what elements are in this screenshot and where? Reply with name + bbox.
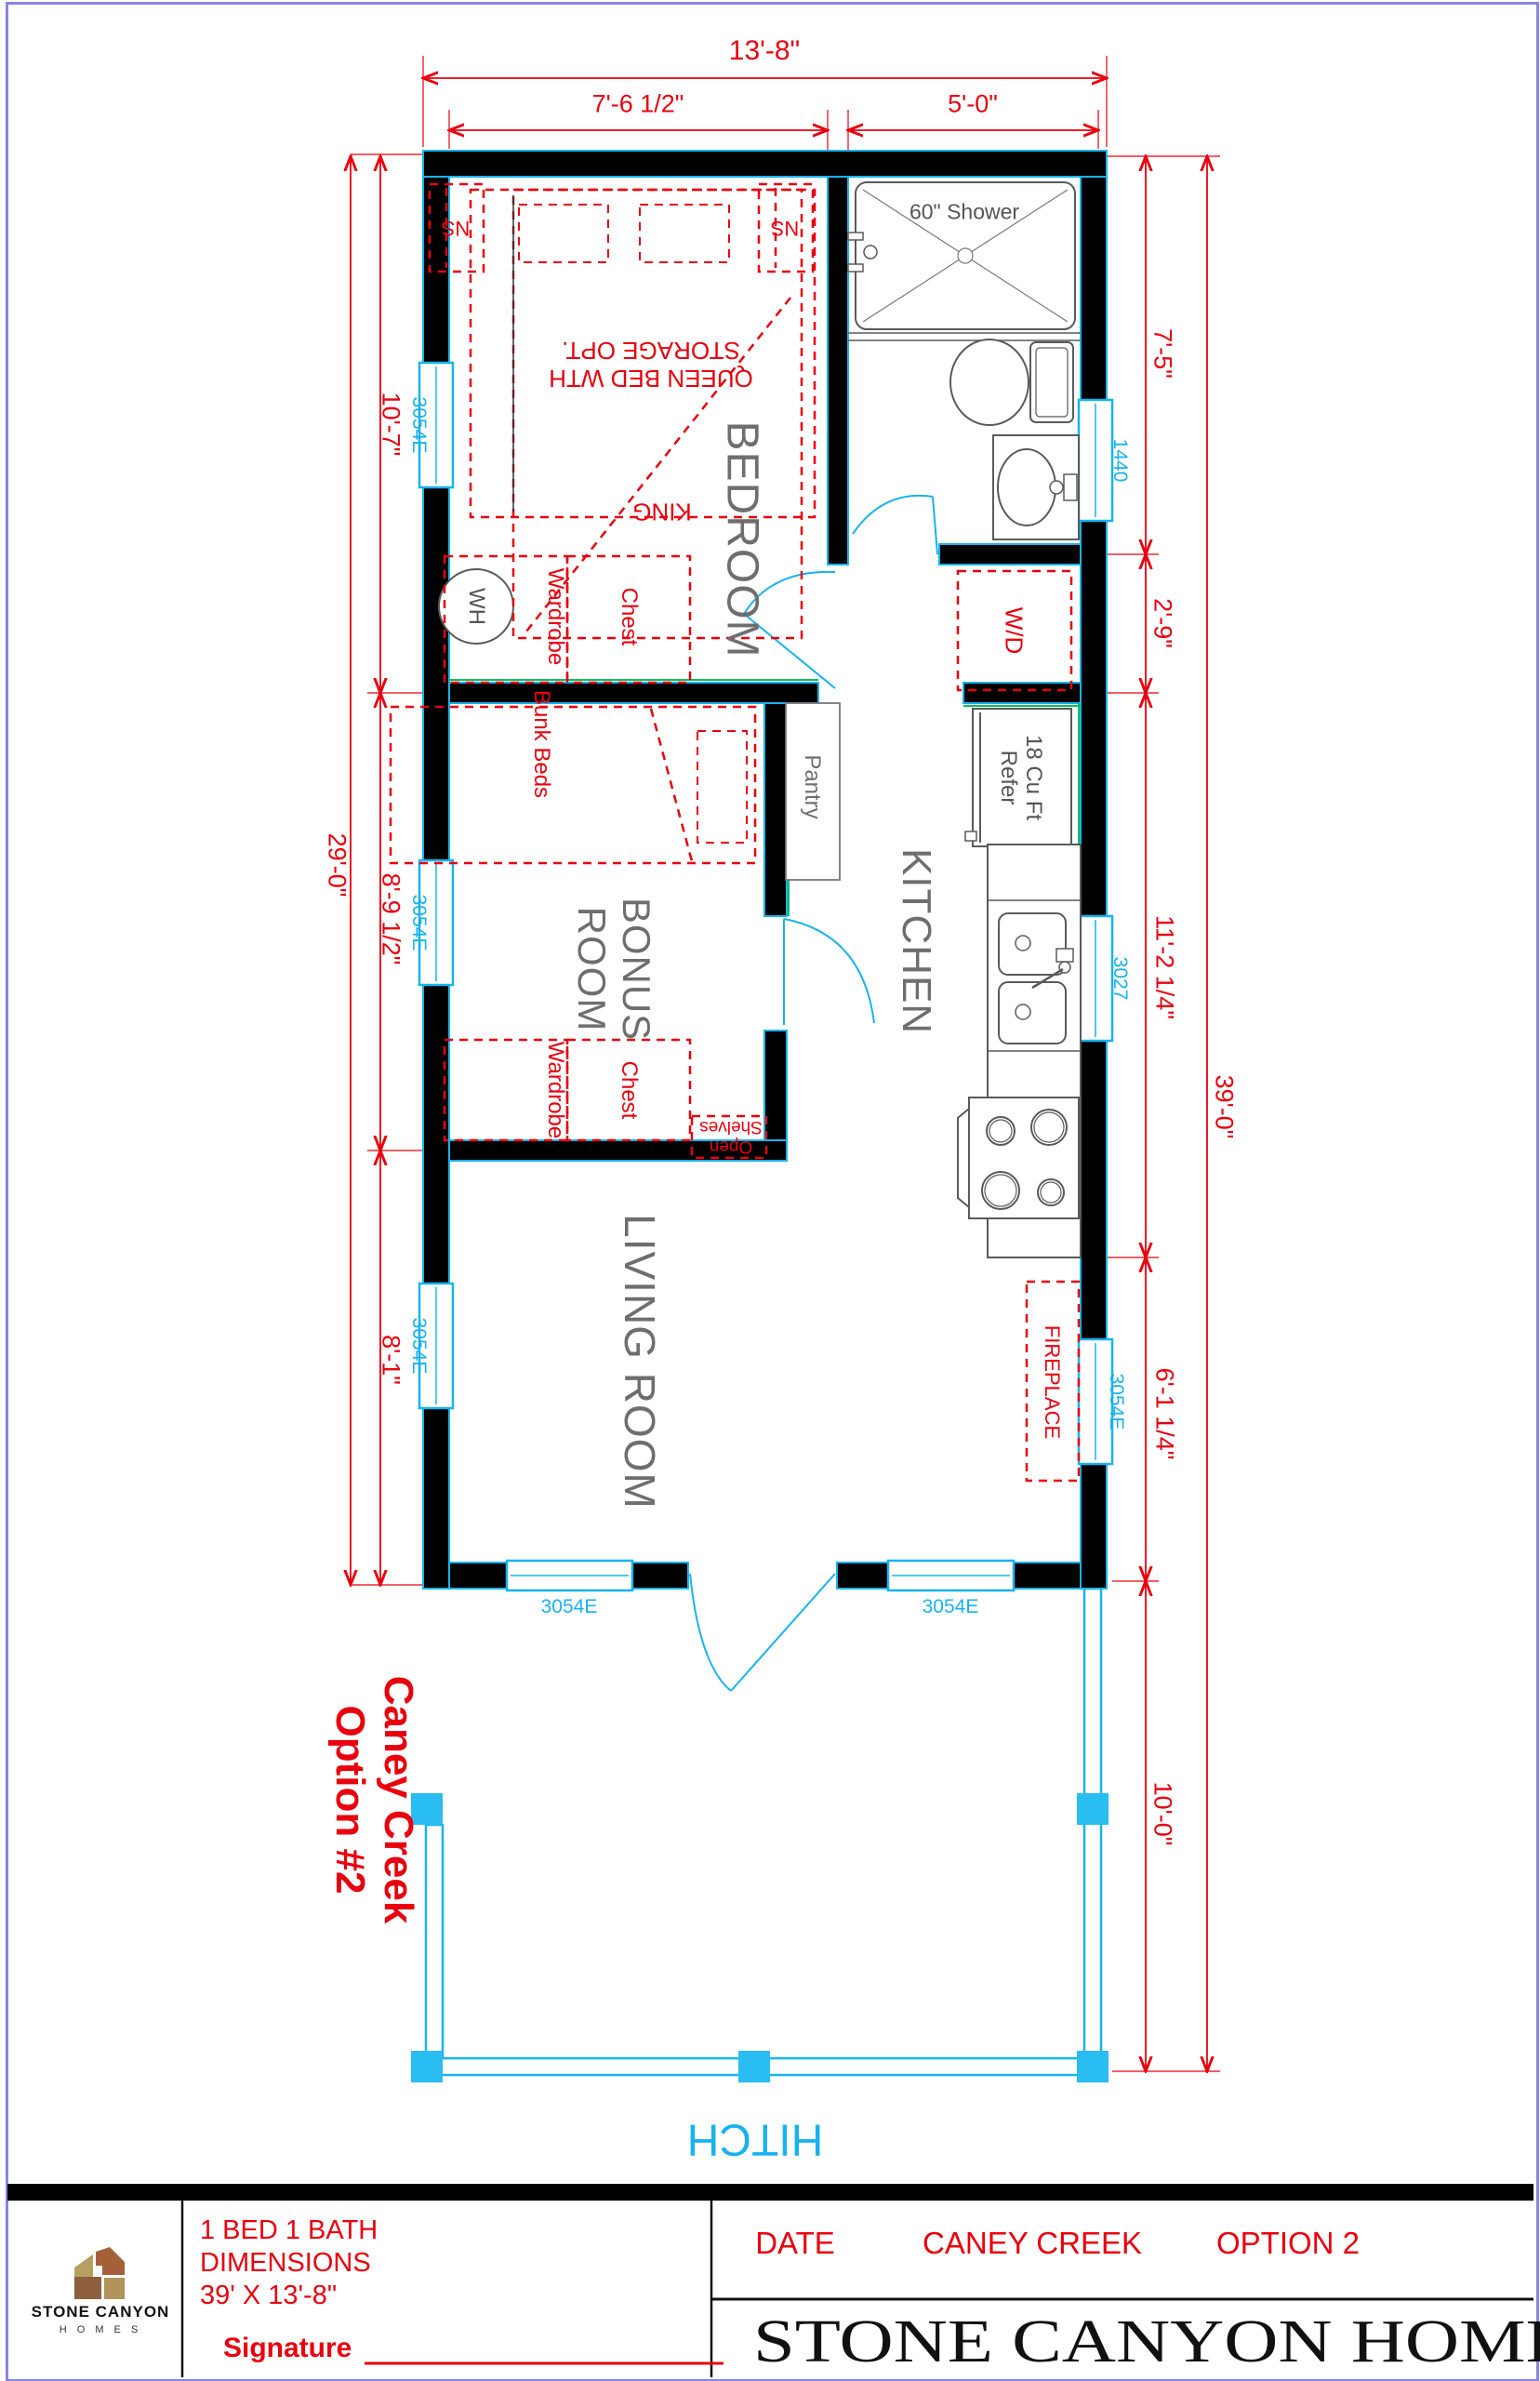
company-logo <box>74 2247 125 2299</box>
logo-homes: H O M E S <box>60 2324 142 2335</box>
refrigerator-label: 18 Cu FtRefer <box>996 735 1046 820</box>
window-label-bonus: 3054E <box>407 895 430 951</box>
date-label: DATE <box>755 2226 835 2261</box>
floor-plan-drawing <box>0 0 1540 2381</box>
room-kitchen: KITCHEN <box>893 848 939 1034</box>
logo-company-name: STONE CANYON <box>32 2303 170 2321</box>
king-bed-label: KING <box>632 498 692 526</box>
sheet: 13'-8" 7'-6 1/2" 5'-0" 29'-0" 10'-7" 8'-… <box>0 0 1540 2381</box>
dim-height-bonus: 8'-9 1/2" <box>377 873 405 965</box>
deck <box>411 1589 1109 2082</box>
water-heater-label: WH <box>463 588 489 625</box>
room-bonus: BONUSROOM <box>569 898 658 1041</box>
room-bedroom: BEDROOM <box>717 420 768 658</box>
bunk-beds-label: Bunk Beds <box>528 690 554 798</box>
hitch-label: HITCH <box>687 2114 824 2165</box>
option-label: OPTION 2 <box>1216 2226 1360 2261</box>
doors <box>690 496 937 1691</box>
wardrobe-label-bonus: Wardrobe <box>542 1042 568 1138</box>
fireplace-label: FIREPLACE <box>1040 1325 1064 1439</box>
window-label-front-2: 3054E <box>923 1596 979 1618</box>
pantry-label: Pantry <box>799 754 825 818</box>
nightstand-label-left: NS <box>442 216 471 240</box>
plan-title-annotation: Caney CreekOption #2 <box>325 1676 422 1924</box>
dim-width-bedroom: 7'-6 1/2" <box>592 90 684 119</box>
room-living: LIVING ROOM <box>615 1214 665 1510</box>
bath-fixtures <box>848 182 1081 539</box>
dim-height-kitchen: 11'-2 1/4" <box>1150 915 1179 1019</box>
queen-bed-note: QUEEN BED WTHSTORAGE OPT. <box>549 337 753 392</box>
shower-label: 60" Shower <box>909 200 1019 225</box>
desc-line-1: 1 BED 1 BATH <box>200 2215 378 2246</box>
dim-height-deck: 10'-0" <box>1148 1782 1177 1846</box>
window-label-kitchen: 3027 <box>1109 957 1131 1001</box>
window-label-bath: 1440 <box>1109 439 1131 483</box>
chest-label-bonus: Chest <box>616 1061 642 1120</box>
desc-line-2: DIMENSIONS <box>200 2248 371 2279</box>
window-label-living-left: 3054E <box>407 1318 430 1375</box>
dim-height-wd: 2'-9" <box>1148 598 1177 648</box>
dim-height-fireplace: 6'-1 1/4" <box>1150 1368 1179 1460</box>
wardrobe-label-bedroom: Wardrobe <box>542 568 568 665</box>
window-label-bedroom: 3054E <box>407 397 430 454</box>
signature-label: Signature <box>223 2333 352 2364</box>
project-name: CANEY CREEK <box>923 2226 1142 2261</box>
company-name: STONE CANYON HOMES <box>753 2307 1540 2377</box>
window-label-living-right: 3054E <box>1105 1374 1127 1430</box>
window-label-front-1: 3054E <box>541 1596 598 1618</box>
nightstand-label-right: NS <box>771 216 800 240</box>
open-shelves-label: OpenShelves <box>699 1117 763 1156</box>
dim-height-total: 39'-0" <box>1210 1075 1239 1139</box>
dim-height-living: 8'-1" <box>377 1335 405 1385</box>
chest-label-bedroom: Chest <box>616 588 642 646</box>
washer-dryer-label: W/D <box>1000 607 1029 655</box>
dim-width-total: 13'-8" <box>729 35 800 67</box>
dim-width-bath: 5'-0" <box>948 90 998 119</box>
desc-line-3: 39' X 13'-8" <box>200 2281 337 2311</box>
dim-height-bedroom: 10'-7" <box>377 392 405 457</box>
dim-height-bath: 7'-5" <box>1148 328 1177 379</box>
dim-height-unit: 29'-0" <box>323 833 352 898</box>
